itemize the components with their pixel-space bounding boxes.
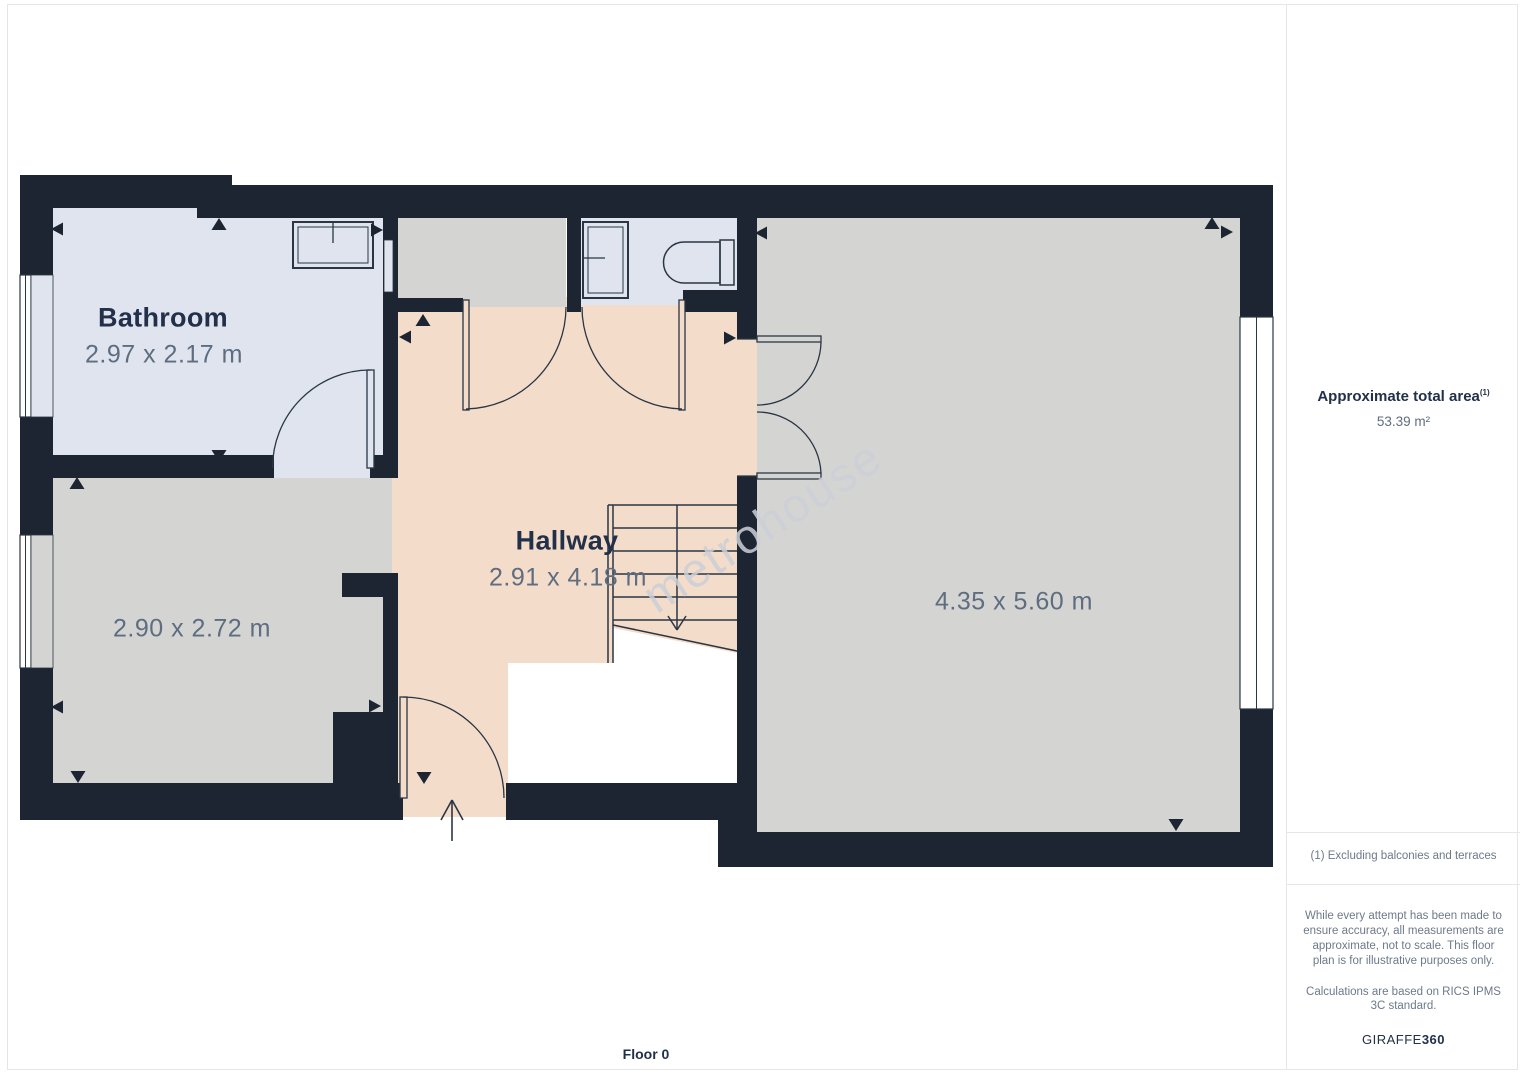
wall [737,218,757,339]
standard-note: Calculations are based on RICS IPMS 3C s… [1300,985,1508,1013]
double-door-leaf [757,473,821,479]
disclaimer-text: While every attempt has been made to ens… [1303,909,1505,969]
brand-name: GIRAFFE [1362,1032,1422,1047]
bathroom-door-leaf [367,370,374,468]
double-door-leaf [757,336,821,342]
sidebar-divider [1287,832,1520,833]
wall [1240,709,1273,832]
large-room-floor [757,218,1240,832]
wall [506,783,718,820]
wall [567,218,581,312]
total-area-block: Approximate total area(1) 53.39 m² [1287,388,1520,429]
wall [1240,208,1273,317]
area-footnote: (1) Excluding balconies and terraces [1287,850,1520,862]
small-room-dimensions: 2.90 x 2.72 m [113,615,271,644]
footnote-ref: (1) [1480,388,1490,397]
large-room-dimensions: 4.35 x 5.60 m [935,588,1093,617]
hallway-dimensions: 2.91 x 4.18 m [489,564,647,593]
wall [718,783,757,832]
brand-logo: GIRAFFE360 [1287,1032,1520,1047]
wc-door-leaf [679,300,685,410]
window-sill [31,535,53,668]
hallway-label: Hallway [516,526,619,557]
brand-suffix: 360 [1422,1032,1445,1047]
wall [197,208,1273,218]
closet-door-leaf [463,300,469,410]
total-area-value: 53.39 m² [1287,414,1520,429]
wall-niche [384,240,393,292]
bathroom-name: Bathroom [98,303,228,333]
wall [383,573,398,712]
entrance-threshold [403,783,506,817]
wall [718,832,1273,867]
total-area-title: Approximate total area(1) [1287,388,1520,405]
floorplan-page: Bathroom 2.97 x 2.17 m Hallway 2.91 x 4.… [0,0,1526,1080]
bathroom-door-threshold [274,455,370,478]
sidebar-divider [1287,884,1520,885]
bathroom-dimensions: 2.97 x 2.17 m [85,341,243,370]
wall [398,298,463,312]
wall [683,290,737,312]
wall [232,185,1273,208]
wc-floor [581,218,737,290]
wall [53,455,274,478]
entrance-door-leaf [400,697,407,798]
wall [20,175,53,820]
closet-doorway-floor [463,298,566,307]
closet-floor [398,218,566,298]
bathroom-label: Bathroom [98,303,228,334]
wall [333,712,398,783]
floor-label: Floor 0 [623,1046,670,1062]
info-sidebar: Approximate total area(1) 53.39 m² (1) E… [1286,4,1520,1070]
hallway-name: Hallway [516,526,619,556]
double-door-threshold [737,339,757,476]
wall [20,783,398,820]
window-sill [31,275,53,417]
